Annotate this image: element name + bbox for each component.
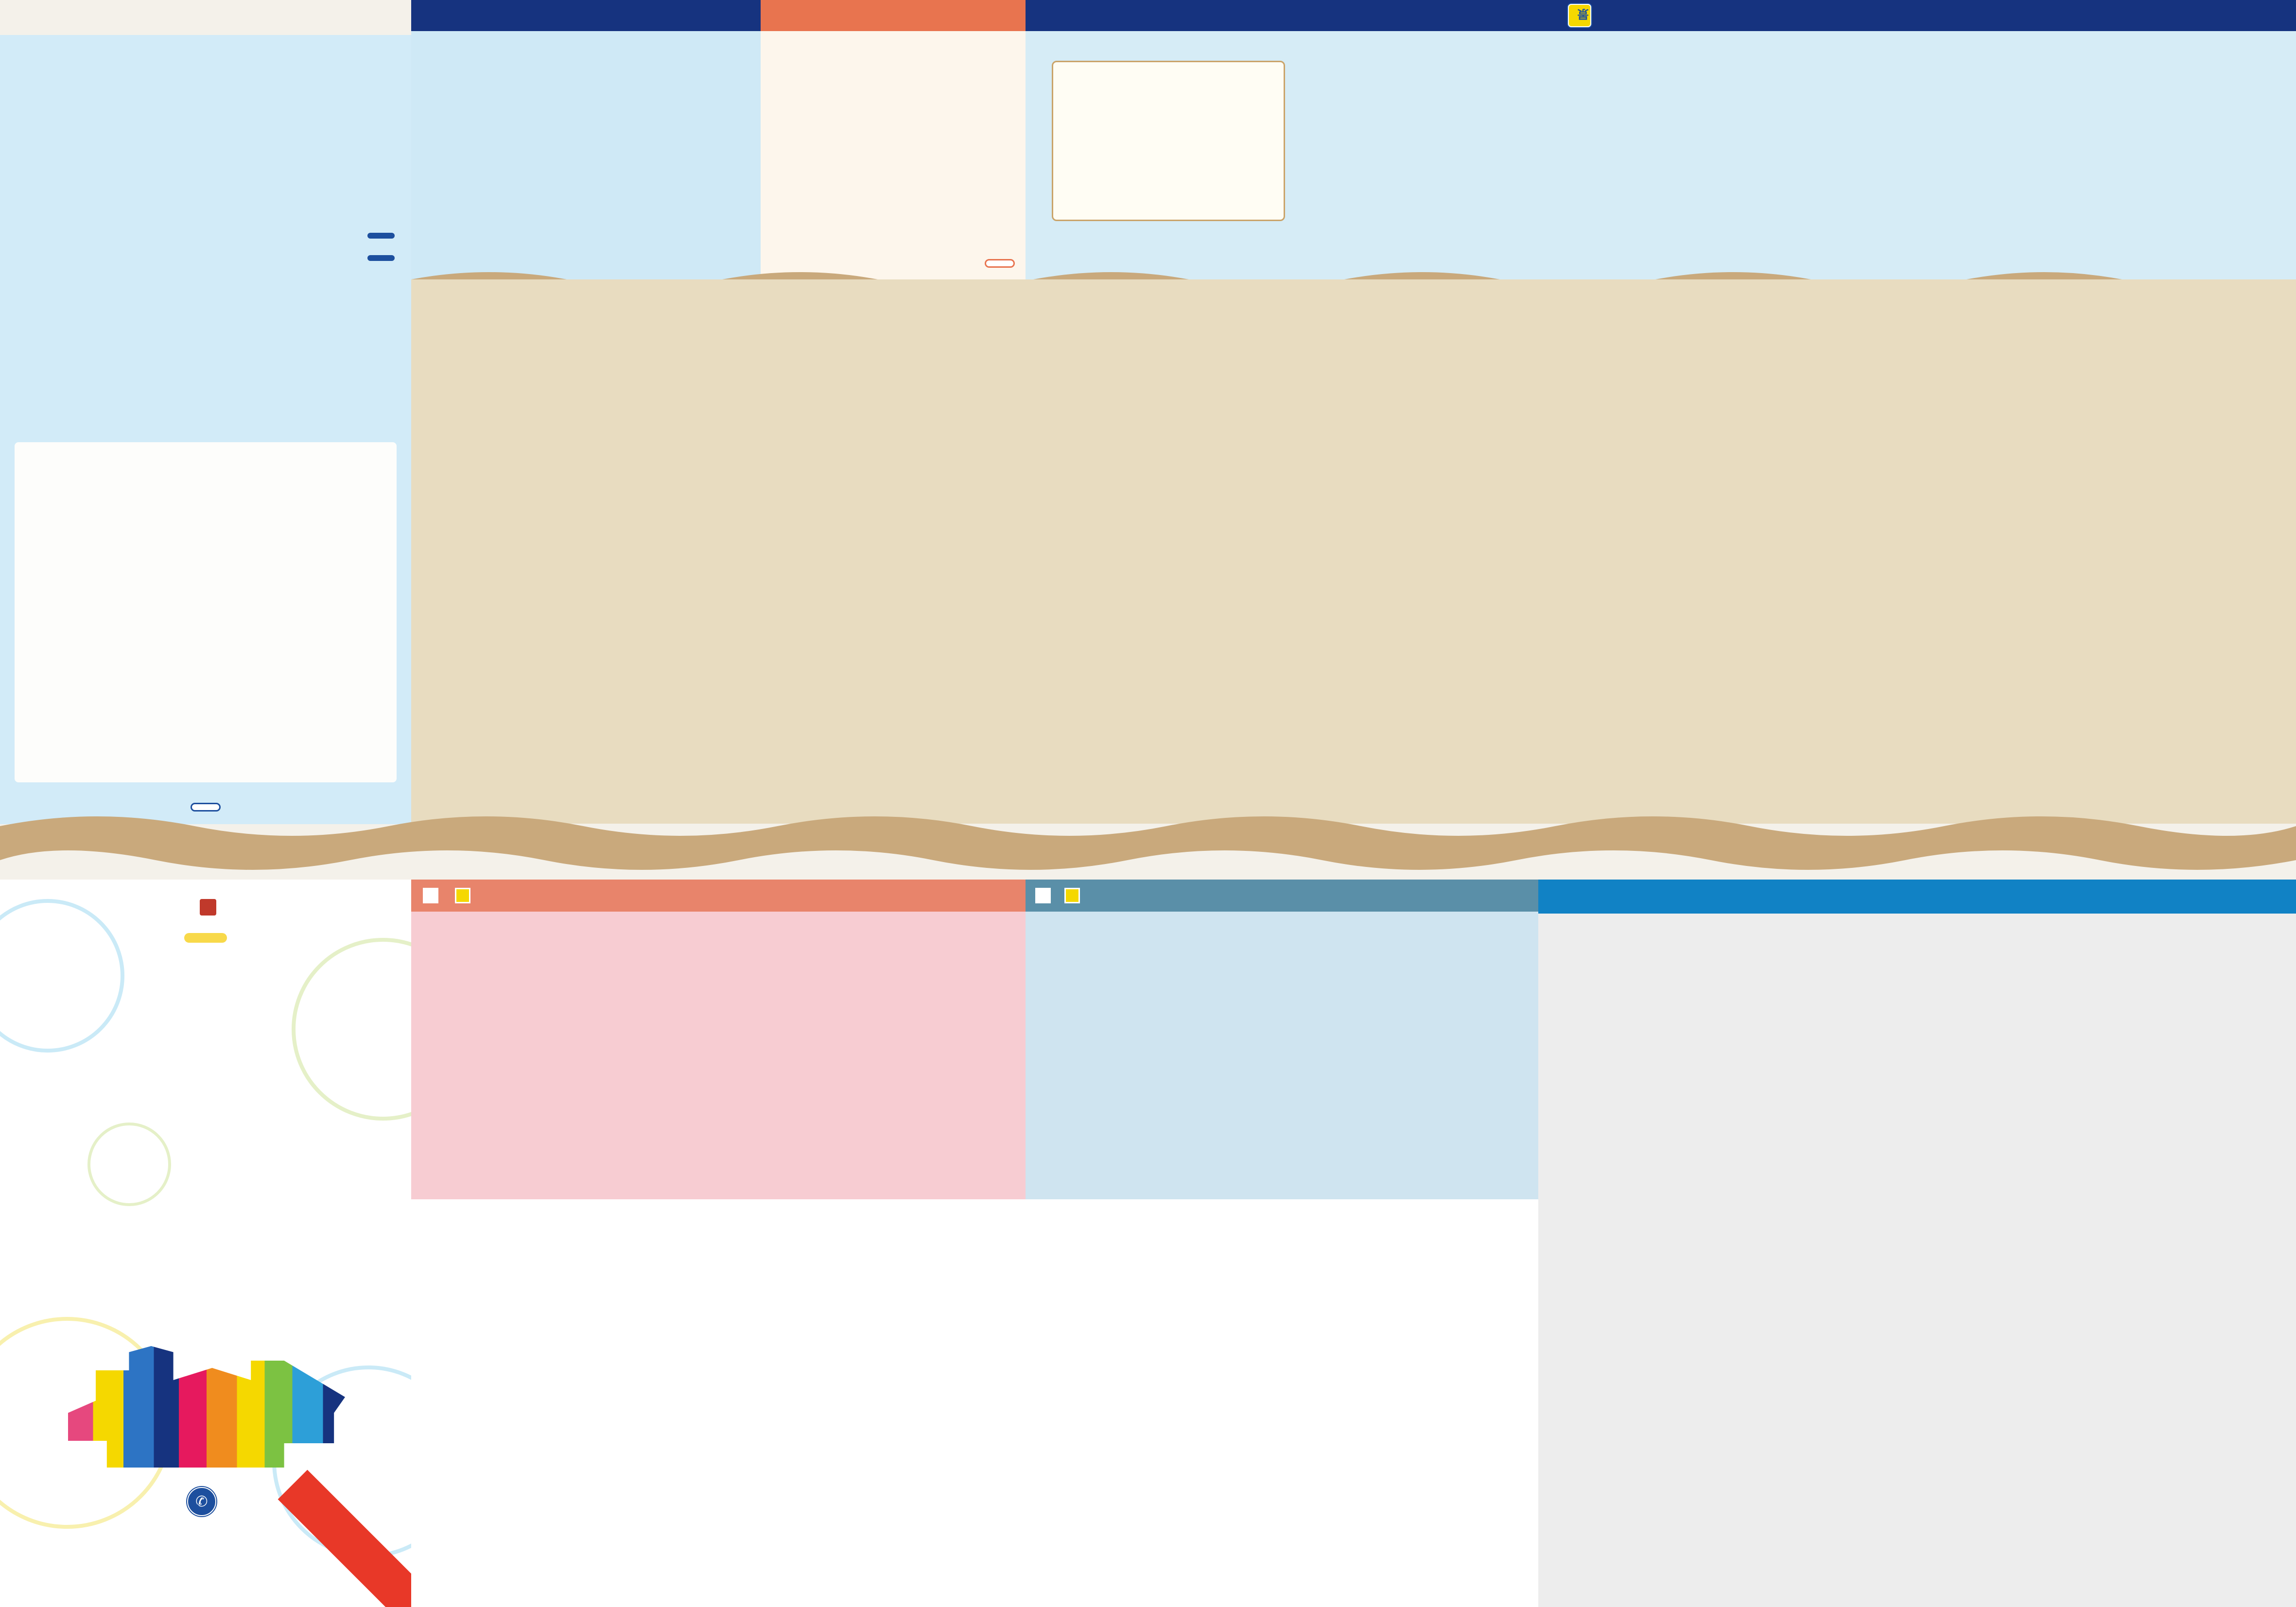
legend-outside [1064,888,1084,903]
legend-inside [423,888,442,903]
panel-spots: 景 [1026,0,2296,279]
area-pill [184,933,227,943]
panel-contact [0,35,411,824]
spots-map-legend [1052,61,1285,221]
east-floor-plan [1026,912,1538,1199]
wave-middle [0,807,2296,880]
official-wechat-qr [169,1526,242,1599]
panel-cover: ✆ [0,880,411,1607]
west-header [411,880,1026,912]
company-title [367,255,395,261]
legend-inside [1035,888,1055,903]
logo-seal [200,899,216,916]
regional-transport-title [411,0,761,31]
phone-title [367,233,395,239]
panel-west-centre [411,880,1026,1607]
panel-regional-transport [411,0,761,279]
town-road-map [15,442,397,782]
itinerary-title [761,0,1026,31]
east-header [1026,880,1538,912]
legend-outside [455,888,474,903]
panel-traffic [1538,880,2296,1607]
east-legend [1026,1199,1538,1607]
brochure-sheet: 景 [0,0,2296,1607]
spot-entries [1305,54,2277,268]
west-legend-right [779,1199,1026,1607]
regional-transport-map [411,31,761,279]
decorative-tile-strip [0,0,411,35]
traffic-header [1538,880,2296,914]
panel-east-centre [1026,880,1538,1607]
panel-sitemap [411,279,2296,824]
west-floor-plan [411,912,1026,1199]
phone-icon: ✆ [187,1487,216,1516]
west-legend-left [411,1199,775,1607]
panel-itinerary [761,0,1026,279]
scenic-spot-icon: 景 [1568,4,1591,27]
